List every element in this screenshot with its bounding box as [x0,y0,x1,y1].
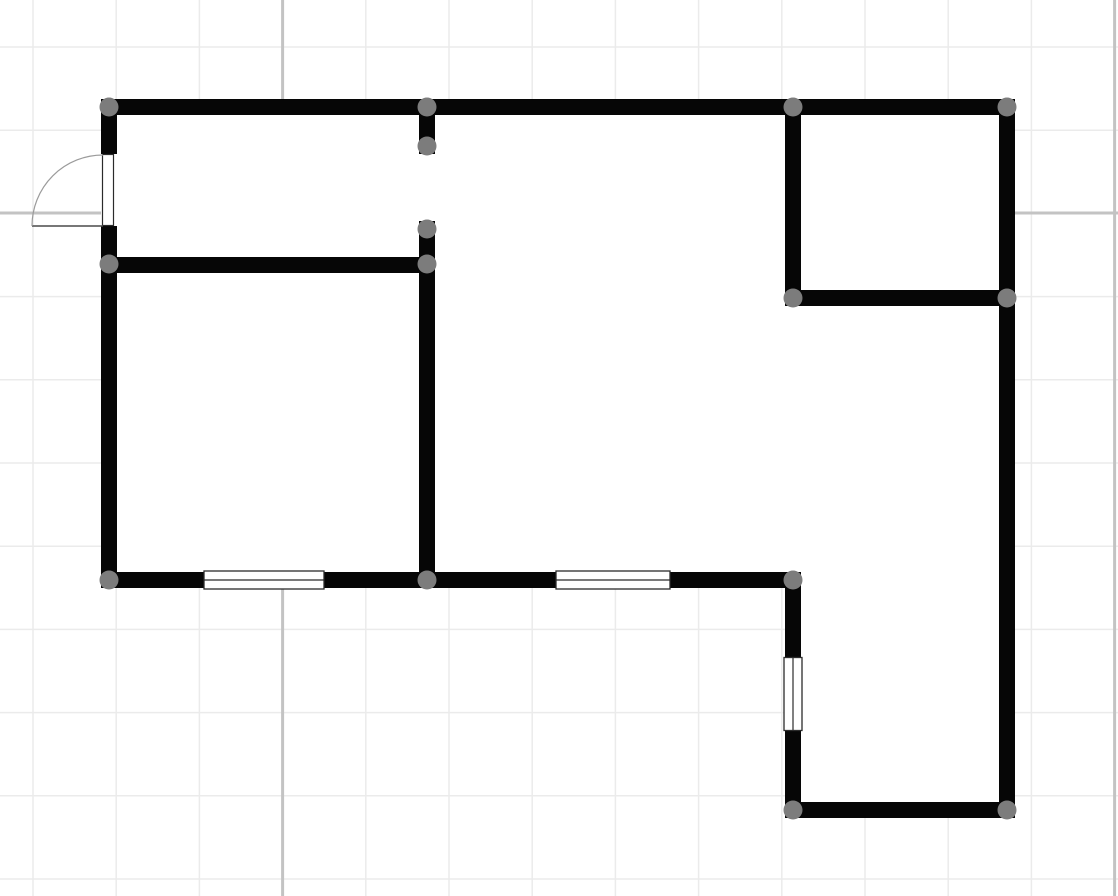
wall-node-handle[interactable] [418,98,437,117]
floor [101,99,1015,818]
wall-node-handle[interactable] [784,571,803,590]
wall-closet-bottom[interactable] [785,290,1015,306]
wall-interior-room-top[interactable] [101,257,435,273]
wall-node-handle[interactable] [998,289,1017,308]
wall-closet-left[interactable] [785,99,801,306]
floor-area [101,99,1015,818]
wall-node-handle[interactable] [784,289,803,308]
door[interactable] [32,154,117,226]
wall-node-handle[interactable] [418,255,437,274]
wall-node-handle[interactable] [100,255,119,274]
wall-node-handle[interactable] [998,801,1017,820]
floorplan-svg [0,0,1118,896]
wall-left-exterior-below-door[interactable] [101,226,117,588]
window[interactable] [204,571,324,589]
wall-node-handle[interactable] [998,98,1017,117]
wall-node-handle[interactable] [784,801,803,820]
wall-interior-vertical[interactable] [419,221,435,588]
wall-node-handle[interactable] [418,220,437,239]
window[interactable] [556,571,670,589]
wall-node-handle[interactable] [100,98,119,117]
windows [204,571,802,731]
wall-bottom-exterior-wing[interactable] [785,802,1015,818]
door-frame[interactable] [103,155,114,226]
window[interactable] [784,658,802,731]
wall-top-exterior[interactable] [101,99,1015,115]
wall-node-handle[interactable] [100,571,119,590]
floorplan-editor-canvas[interactable] [0,0,1118,896]
wall-right-exterior[interactable] [999,99,1015,818]
wall-node-handle[interactable] [418,571,437,590]
wall-node-handle[interactable] [418,137,437,156]
door-swing-arc-icon [32,155,103,226]
wall-node-handle[interactable] [784,98,803,117]
